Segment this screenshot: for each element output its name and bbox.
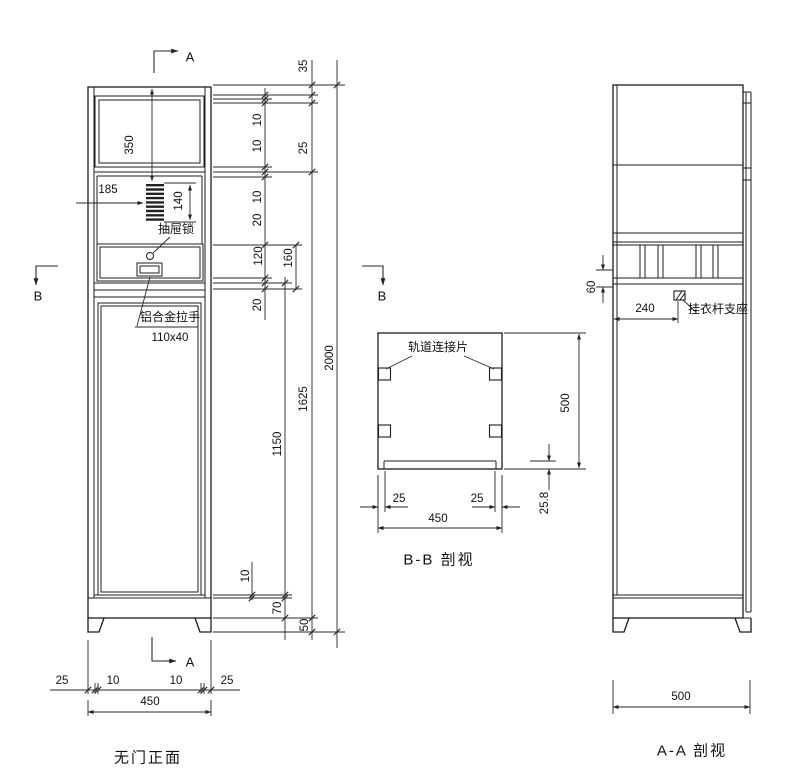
section-b-right-label: B (378, 289, 387, 304)
track-leaders (386, 356, 494, 369)
aa-dims: 60 240 500 (586, 255, 750, 714)
dim-350: 350 (124, 135, 136, 154)
aa-caption: A-A 剖视 (657, 743, 727, 760)
technical-drawing: A A B B 350 185 140 抽屉锁 铝合金拉手 110x40 (0, 0, 790, 773)
lower-panel (98, 303, 201, 595)
handle-size-label: 110x40 (152, 332, 189, 344)
bb-inset-ext (378, 471, 502, 512)
dim-2000: 2000 (324, 345, 336, 371)
dim-70: 70 (272, 602, 284, 615)
lock-leader (153, 237, 170, 253)
bb-caption: B-B 剖视 (403, 552, 474, 569)
top-box (95, 96, 204, 167)
dim-25: 25 (298, 142, 310, 155)
dim-140: 140 (173, 191, 185, 210)
dim-35: 35 (298, 60, 310, 73)
bb-clip-bottom-left (379, 425, 391, 437)
dim-1150: 1150 (272, 432, 284, 457)
section-a-bottom-label: A (186, 655, 195, 670)
dim-50: 50 (299, 619, 311, 632)
section-a-bottom-line (152, 637, 164, 661)
support-label: 挂衣杆支座 (688, 301, 748, 316)
dim-185: 185 (98, 184, 117, 196)
dim-10b: 10 (252, 140, 264, 153)
bb-clip-top-right (490, 368, 502, 380)
track-label: 轨道连接片 (408, 339, 468, 354)
front-view: A A B B 350 185 140 抽屉锁 铝合金拉手 110x40 (34, 50, 387, 767)
section-a-top-line (154, 51, 168, 73)
front-cabinet-outline (88, 87, 211, 632)
lock-label: 抽屉锁 (158, 221, 194, 236)
drawer-lock-hole (147, 253, 154, 260)
dim-20b: 20 (252, 299, 264, 312)
feet (88, 618, 211, 632)
aa-feet (613, 618, 751, 632)
dim-1625: 1625 (298, 386, 310, 412)
section-aa-view: 挂衣杆支座 60 240 500 A-A 剖视 (586, 85, 751, 760)
bb-dims: 25 25 450 500 25.8 (360, 333, 586, 533)
bb-base-strip (384, 461, 496, 469)
front-bottom-dims: 25 10 10 25 450 无门正面 (50, 640, 240, 767)
dim-20a: 20 (252, 214, 264, 227)
dim-foot-inset-l: 25 (56, 675, 69, 687)
bb-height-ext (504, 333, 586, 469)
dim-bb-width: 450 (428, 513, 447, 525)
drawer-handle (137, 263, 162, 276)
dim-120: 120 (253, 246, 265, 265)
dim-foot-w-r: 10 (170, 675, 183, 687)
dim-foot-w-l: 10 (107, 675, 120, 687)
section-a-top-label: A (186, 50, 195, 65)
section-b-left-label: B (34, 289, 43, 304)
dim-10a: 10 (252, 114, 264, 127)
bb-clip-bottom-right (490, 425, 502, 437)
front-caption: 无门正面 (114, 750, 182, 767)
aa-shelf-lines (613, 165, 743, 598)
plinth (88, 595, 211, 598)
dim-10c: 10 (252, 191, 264, 204)
lower-panel-inner (101, 306, 198, 592)
dim-160: 160 (283, 248, 295, 267)
section-b-right-line (362, 266, 383, 279)
aa-slats (640, 245, 718, 278)
dim-foot-inset-r: 25 (221, 675, 234, 687)
top-box-inner (99, 100, 200, 163)
section-bb-view: 轨道连接片 25 25 450 500 25.8 B-B 剖视 (360, 333, 586, 569)
dim-width: 450 (140, 696, 159, 708)
dim-bb-base: 25.8 (539, 492, 551, 514)
aa-rail-ext (596, 270, 613, 287)
front-right-dim-chains: 10 10 35 25 10 20 120 160 20 1150 1625 2… (213, 60, 345, 648)
dim-bb-inset-left: 25 (393, 493, 406, 505)
section-b-left-line (36, 266, 58, 279)
dim-aa-depth: 500 (671, 691, 690, 703)
dim-bb-inset-right: 25 (471, 493, 484, 505)
bb-clip-top-left (379, 368, 391, 380)
handle-label: 铝合金拉手 (140, 309, 200, 324)
drawing-canvas: A A B B 350 185 140 抽屉锁 铝合金拉手 110x40 (0, 0, 790, 773)
dim-bb-height: 500 (560, 393, 572, 412)
dim-aa-rail: 60 (586, 281, 598, 294)
bands (94, 283, 205, 297)
dim-aa-240: 240 (635, 303, 654, 315)
louver-vents (146, 184, 164, 221)
dim-10d: 10 (240, 570, 252, 583)
drawer-handle-inner (140, 266, 159, 273)
